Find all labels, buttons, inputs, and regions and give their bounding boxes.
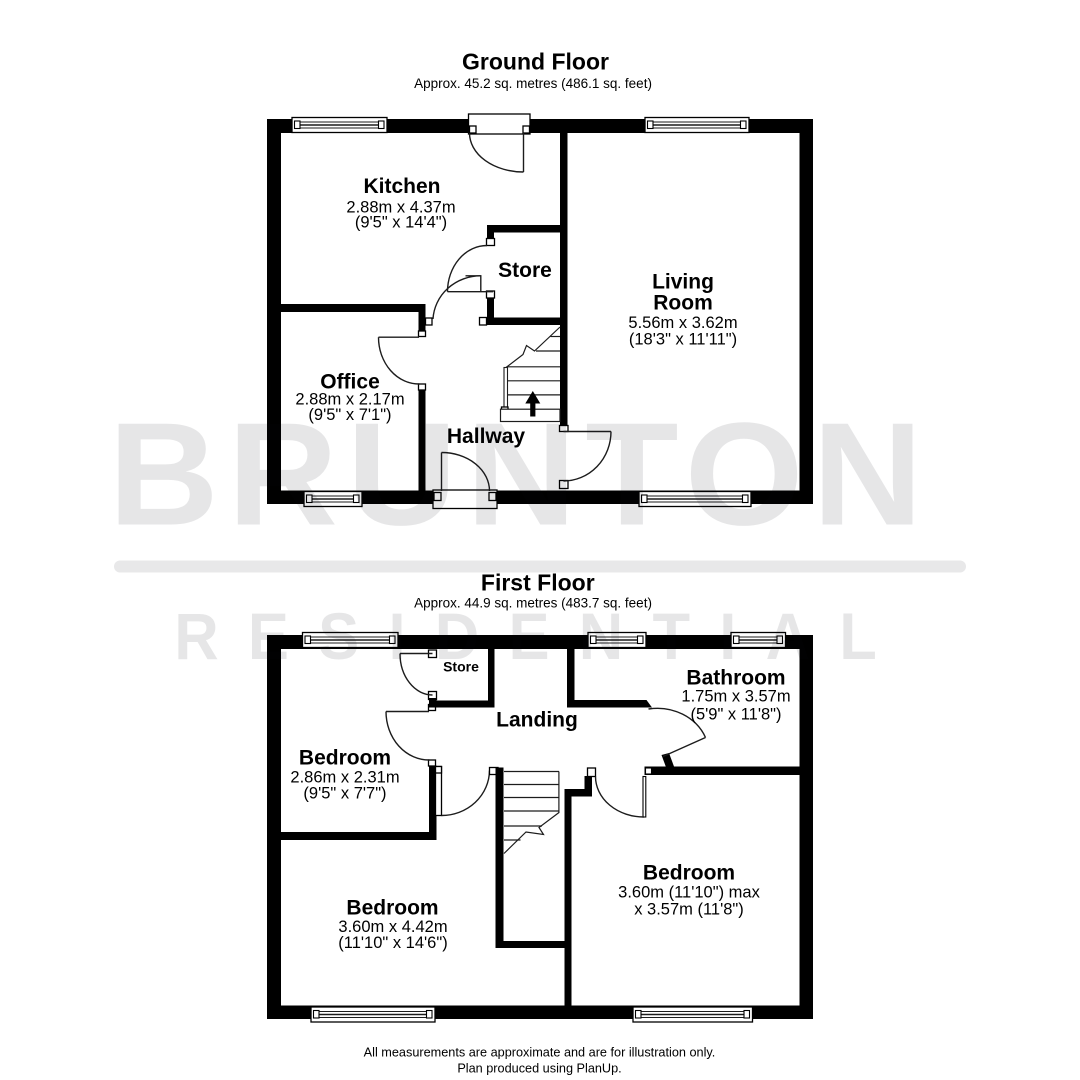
svg-text:1.75m x 3.57m: 1.75m x 3.57m bbox=[681, 688, 790, 706]
svg-text:All measurements are approxima: All measurements are approximate and are… bbox=[364, 1046, 716, 1060]
svg-text:Room: Room bbox=[653, 292, 713, 315]
svg-text:Kitchen: Kitchen bbox=[363, 175, 440, 198]
svg-text:3.60m (11'10") max: 3.60m (11'10") max bbox=[618, 884, 760, 902]
svg-text:Bedroom: Bedroom bbox=[643, 862, 735, 885]
svg-text:Store: Store bbox=[498, 259, 552, 282]
svg-text:Approx. 45.2 sq. metres (486.1: Approx. 45.2 sq. metres (486.1 sq. feet) bbox=[414, 76, 652, 91]
svg-text:5.56m x 3.62m: 5.56m x 3.62m bbox=[628, 314, 737, 332]
svg-text:(18'3" x 11'11"): (18'3" x 11'11") bbox=[629, 331, 737, 349]
svg-text:Bedroom: Bedroom bbox=[346, 897, 438, 920]
svg-text:BRUNTON: BRUNTON bbox=[108, 391, 931, 555]
svg-text:(5'9" x 11'8"): (5'9" x 11'8") bbox=[690, 706, 781, 724]
svg-text:First Floor: First Floor bbox=[481, 570, 595, 596]
svg-text:Plan produced using PlanUp.: Plan produced using PlanUp. bbox=[457, 1062, 621, 1076]
svg-text:Living: Living bbox=[652, 271, 714, 294]
svg-text:x 3.57m (11'8"): x 3.57m (11'8") bbox=[634, 901, 744, 919]
svg-text:Ground Floor: Ground Floor bbox=[462, 49, 609, 75]
svg-text:(11'10" x 14'6"): (11'10" x 14'6") bbox=[338, 934, 447, 952]
svg-text:Bedroom: Bedroom bbox=[299, 747, 391, 770]
svg-text:RESIDENTIAL: RESIDENTIAL bbox=[174, 600, 906, 673]
svg-text:(9'5" x 14'4"): (9'5" x 14'4") bbox=[355, 214, 447, 232]
svg-text:(9'5" x 7'7"): (9'5" x 7'7") bbox=[303, 785, 386, 803]
svg-text:Landing: Landing bbox=[496, 709, 578, 732]
